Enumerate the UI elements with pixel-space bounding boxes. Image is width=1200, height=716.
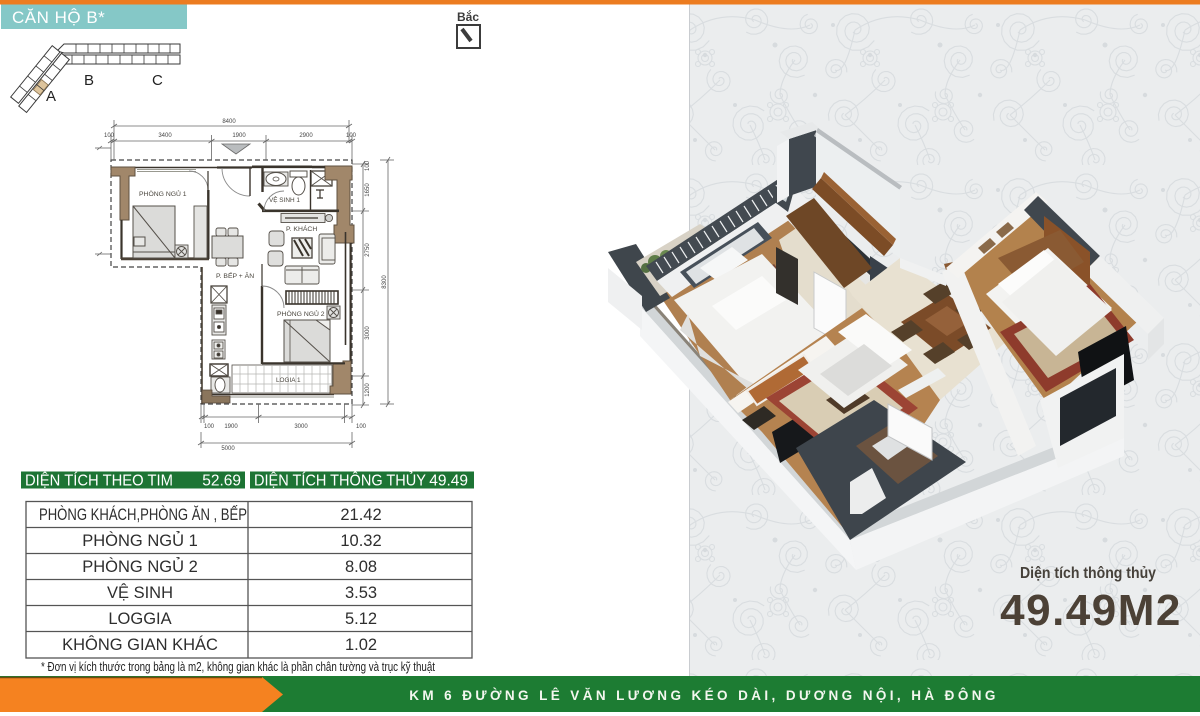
svg-text:8.08: 8.08 bbox=[345, 558, 377, 576]
svg-text:1900: 1900 bbox=[232, 133, 246, 139]
svg-text:21.42: 21.42 bbox=[340, 506, 381, 524]
svg-text:3400: 3400 bbox=[158, 133, 172, 139]
svg-text:LOGGIA: LOGGIA bbox=[108, 610, 171, 628]
svg-text:CĂN HỘ B*: CĂN HỘ B* bbox=[12, 8, 105, 27]
svg-text:3000: 3000 bbox=[294, 424, 308, 430]
svg-text:2750: 2750 bbox=[365, 243, 371, 257]
svg-text:100: 100 bbox=[346, 133, 357, 139]
svg-text:8300: 8300 bbox=[382, 275, 388, 289]
svg-text:49.49: 49.49 bbox=[429, 473, 468, 490]
svg-text:LOGIA 1: LOGIA 1 bbox=[276, 377, 301, 384]
svg-text:PHÒNG KHÁCH,PHÒNG ĂN , BẾP: PHÒNG KHÁCH,PHÒNG ĂN , BẾP bbox=[39, 505, 247, 524]
svg-text:Bắc: Bắc bbox=[457, 9, 479, 24]
svg-text:100: 100 bbox=[356, 424, 367, 430]
svg-text:Diện tích thông thủy: Diện tích thông thủy bbox=[1020, 565, 1156, 582]
svg-text:49.49M2: 49.49M2 bbox=[1000, 586, 1182, 635]
svg-text:100: 100 bbox=[104, 133, 115, 139]
svg-text:1900: 1900 bbox=[224, 424, 238, 430]
svg-text:PHÒNG NGỦ 1: PHÒNG NGỦ 1 bbox=[139, 189, 187, 198]
svg-text:5.12: 5.12 bbox=[345, 610, 377, 628]
svg-text:KM 6 ĐƯỜNG LÊ VĂN LƯƠNG KÉO DÀ: KM 6 ĐƯỜNG LÊ VĂN LƯƠNG KÉO DÀI, DƯƠNG N… bbox=[409, 688, 999, 703]
svg-text:10.32: 10.32 bbox=[340, 532, 381, 550]
svg-text:DIỆN TÍCH THÔNG THỦY: DIỆN TÍCH THÔNG THỦY bbox=[254, 472, 426, 490]
svg-text:2900: 2900 bbox=[299, 133, 313, 139]
svg-text:VỆ SINH 1: VỆ SINH 1 bbox=[269, 195, 300, 204]
svg-text:3.53: 3.53 bbox=[345, 584, 377, 602]
svg-text:PHÒNG NGỦ 2: PHÒNG NGỦ 2 bbox=[82, 557, 198, 576]
svg-text:A: A bbox=[46, 88, 56, 105]
svg-text:PHÒNG NGỦ 1: PHÒNG NGỦ 1 bbox=[82, 531, 198, 550]
svg-text:DIỆN TÍCH THEO TIM: DIỆN TÍCH THEO TIM bbox=[25, 473, 173, 490]
svg-text:5000: 5000 bbox=[221, 446, 235, 452]
svg-text:PHÒNG NGỦ 2: PHÒNG NGỦ 2 bbox=[277, 309, 325, 318]
svg-text:52.69: 52.69 bbox=[202, 473, 241, 490]
svg-text:100: 100 bbox=[204, 424, 215, 430]
svg-text:8400: 8400 bbox=[222, 119, 236, 125]
svg-text:100: 100 bbox=[365, 160, 371, 171]
svg-text:* Đơn vị kích thước trong bảng: * Đơn vị kích thước trong bảng là m2, kh… bbox=[41, 659, 435, 674]
svg-text:3000: 3000 bbox=[365, 326, 371, 340]
svg-text:C: C bbox=[152, 72, 163, 89]
svg-text:B: B bbox=[84, 72, 94, 89]
svg-text:1.02: 1.02 bbox=[345, 636, 377, 654]
svg-text:1200: 1200 bbox=[365, 383, 371, 397]
svg-text:1650: 1650 bbox=[365, 183, 371, 197]
svg-text:KHÔNG GIAN KHÁC: KHÔNG GIAN KHÁC bbox=[62, 635, 218, 654]
svg-text:VỆ SINH: VỆ SINH bbox=[107, 583, 173, 602]
svg-text:P. KHÁCH: P. KHÁCH bbox=[286, 224, 317, 233]
